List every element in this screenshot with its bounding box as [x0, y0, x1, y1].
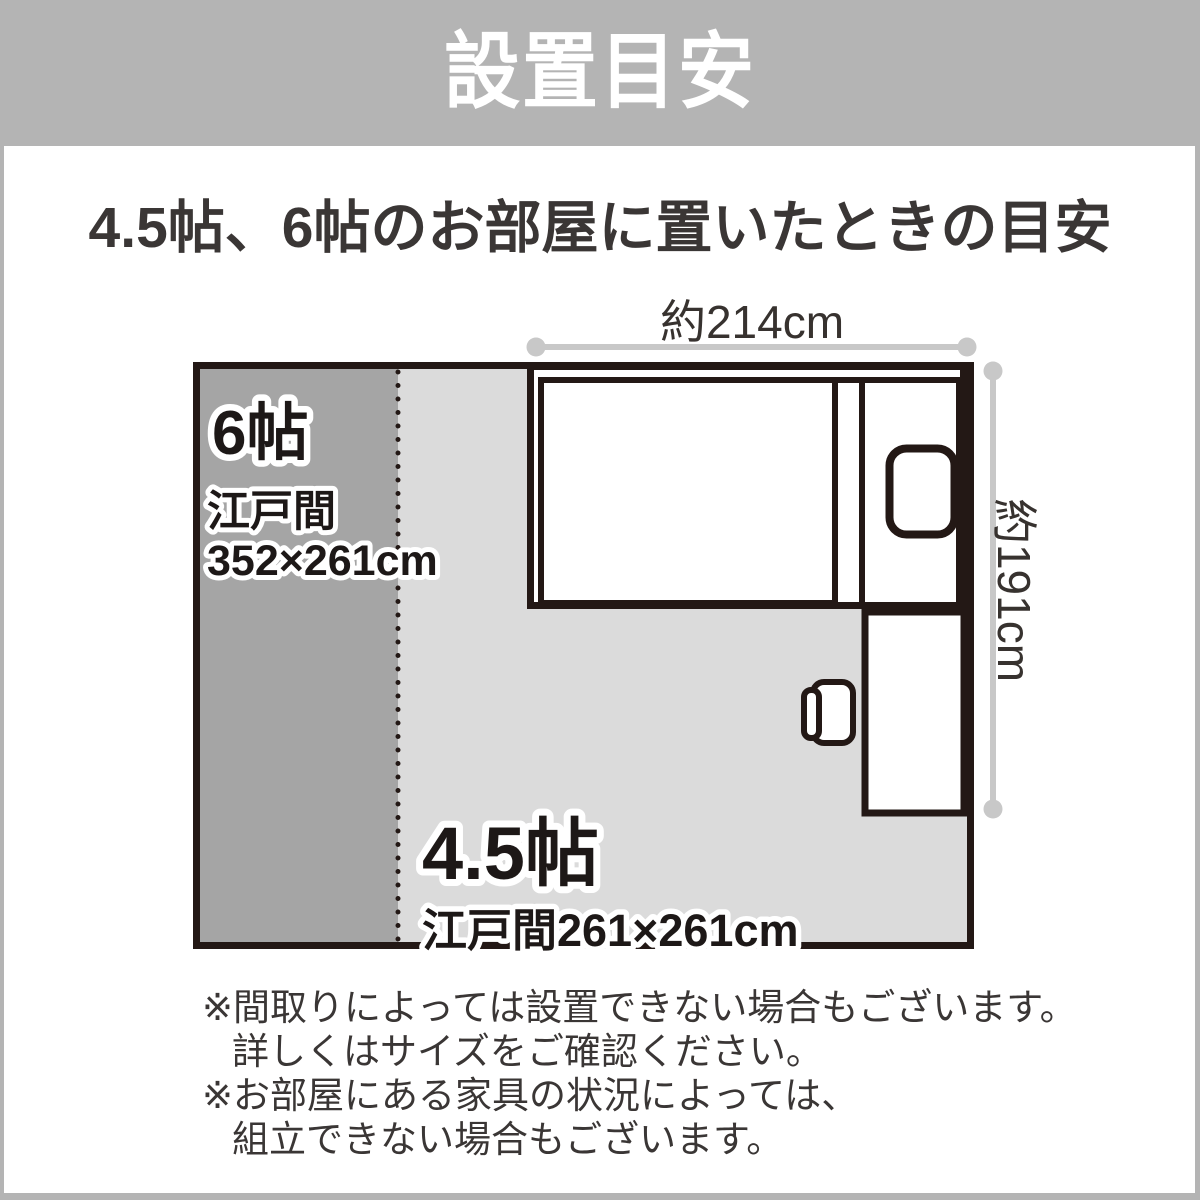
room-45jo-dimensions-label: 江戸間261×261cm [422, 905, 798, 956]
measure-endpoint [958, 338, 977, 357]
measure-endpoint [984, 800, 1003, 819]
room-6jo-layout-label: 江戸間 [207, 488, 336, 536]
room-6jo-size-label: 6帖 [212, 399, 308, 468]
footnote-line: 詳しくはサイズをご確認ください。 [202, 1030, 1077, 1074]
footnote-line: 組立できない場合もございます。 [202, 1118, 1077, 1162]
bed-depth-label: 約191cm [988, 498, 1040, 682]
page: 設置目安 4.5帖、6帖のお部屋に置いたときの目安 約214cm 約191cm [0, 0, 1200, 1200]
bed-headboard-pillow [890, 449, 955, 535]
footnote-line: ※間取りによっては設置できない場合もございます。 [202, 986, 1077, 1030]
chair-backrest [804, 690, 819, 738]
footnote-line: ※お部屋にある家具の状況によっては、 [202, 1074, 1077, 1118]
room-6jo-dimensions-label: 352×261cm [207, 537, 438, 585]
desk-outline [865, 612, 964, 813]
measure-endpoint [984, 362, 1003, 381]
measure-endpoint [527, 338, 546, 357]
bed-width-label: 約214cm [660, 296, 844, 348]
footnotes: ※間取りによっては設置できない場合もございます。 詳しくはサイズをご確認ください… [202, 986, 1077, 1162]
room-45jo-size-label: 4.5帖 [422, 812, 599, 895]
